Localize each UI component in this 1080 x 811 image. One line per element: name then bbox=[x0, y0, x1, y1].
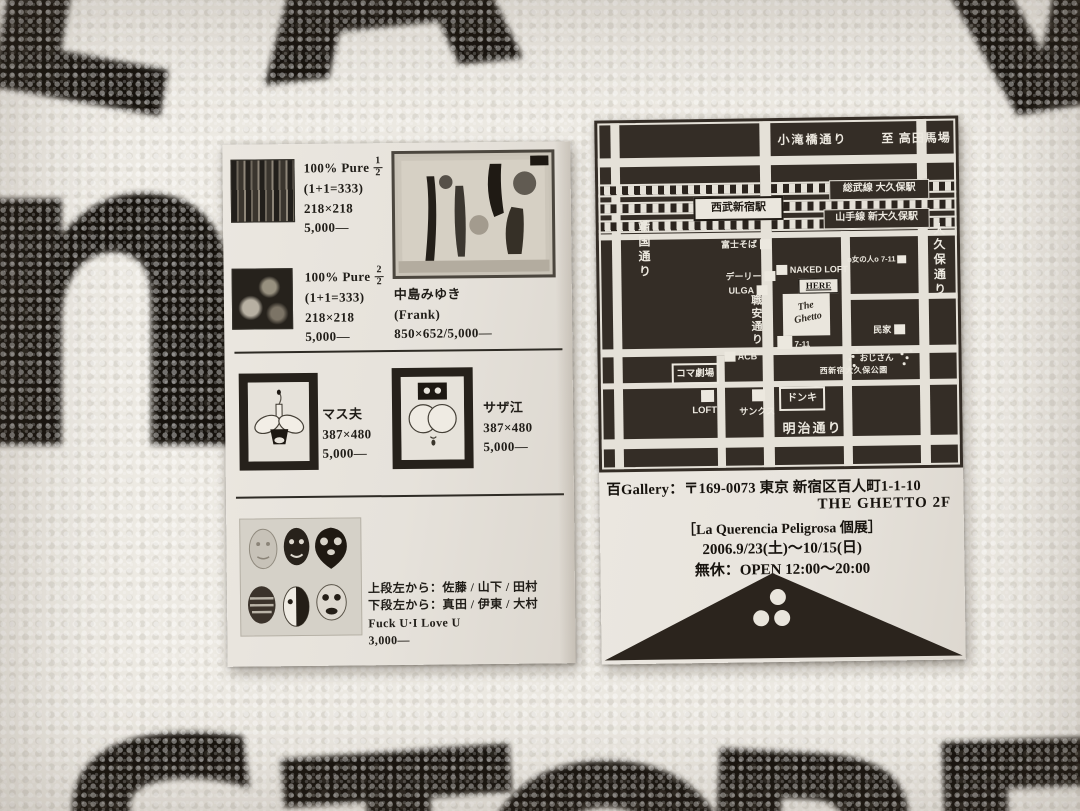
building-box-icon bbox=[756, 285, 767, 295]
masks-price: 3,000— bbox=[368, 631, 538, 650]
direction-takadanobaba-label: 至 高田馬場 bbox=[881, 129, 951, 147]
road-yasukuni bbox=[610, 123, 624, 469]
divider bbox=[234, 348, 562, 353]
building-box-icon bbox=[701, 390, 714, 402]
fraction: 22 bbox=[374, 265, 384, 287]
station-okubo: 総武線 大久保駅 bbox=[829, 179, 929, 200]
artwork-thumbnail-pure-1 bbox=[230, 159, 295, 223]
poi-fujisoba: 富士そば bbox=[721, 237, 771, 251]
artwork-name: サザ江 bbox=[483, 398, 532, 418]
poi-ojisan: おじさん bbox=[859, 351, 893, 363]
artwork-name: マス夫 bbox=[322, 404, 371, 424]
artwork-size: 387×480 bbox=[322, 424, 371, 444]
masks-photo bbox=[239, 517, 362, 636]
artwork-price: 5,000— bbox=[304, 217, 383, 237]
street-meiji-label: 明治通り bbox=[782, 417, 842, 437]
artwork-size: 387×480 bbox=[483, 417, 532, 437]
poi-seven-eleven: 7-11 bbox=[777, 336, 810, 349]
street-yasukuni-label: 靖国通り bbox=[636, 220, 654, 280]
building-box-icon bbox=[752, 389, 765, 401]
poi-koma-theater: コマ劇場 bbox=[672, 363, 719, 385]
artwork-price: 5,000— bbox=[322, 443, 371, 463]
artwork-size: 218×218 bbox=[304, 198, 383, 218]
building-box-icon bbox=[759, 239, 770, 249]
artwork-size: 218×218 bbox=[305, 307, 384, 327]
sparkle-dots bbox=[852, 355, 855, 358]
poi-minka: 民家 bbox=[873, 322, 905, 335]
framed-cartoon-sazae bbox=[392, 367, 474, 469]
poi-loft: LOFT bbox=[692, 405, 717, 416]
gallery-floor: THE GHETTO 2F bbox=[817, 495, 951, 514]
poi-naked-loft: NAKED LOFT bbox=[776, 264, 848, 275]
building-box-icon bbox=[777, 336, 792, 349]
artwork-title: 100% Pure22 bbox=[305, 265, 384, 288]
artwork-size-price: 850×652/5,000— bbox=[394, 323, 492, 344]
poi-donki: ドンキ bbox=[779, 386, 825, 411]
sparkle-dots bbox=[900, 352, 903, 355]
fraction: 12 bbox=[373, 156, 383, 178]
divider bbox=[236, 493, 564, 498]
masks-row2-names: 下段左から：真田 / 伊東 / 大村 bbox=[368, 596, 538, 615]
venue-handwritten-name: The Ghetto bbox=[784, 297, 830, 327]
featured-artwork-image bbox=[391, 149, 555, 279]
venue-building: The Ghetto bbox=[783, 293, 831, 336]
street-okubo-label: 大久保通り bbox=[931, 223, 949, 298]
bowling-ball-triangle-graphic bbox=[601, 567, 966, 662]
poi-sunkus: サンクス bbox=[739, 404, 775, 417]
artwork-thumbnail-pure-2 bbox=[232, 268, 294, 330]
road-kotakibashi bbox=[598, 154, 956, 168]
artist-name: 中島みゆき bbox=[394, 284, 492, 305]
artwork-edition: (1+1=333) bbox=[305, 287, 384, 307]
artwork-title: 100% Pure12 bbox=[303, 156, 382, 179]
artwork-price: 5,000— bbox=[305, 326, 384, 346]
street-kotakibashi-label: 小滝橋通り bbox=[777, 130, 847, 148]
street-shokuan-label: 職安通り bbox=[748, 294, 765, 346]
building-box-icon bbox=[764, 271, 775, 281]
building-box-icon bbox=[898, 255, 907, 263]
station-shin-okubo: 山手線 新大久保駅 bbox=[823, 208, 929, 229]
masks-caption: 上段左から：佐藤 / 山下 / 田村 下段左から：真田 / 伊東 / 大村 Fu… bbox=[368, 579, 539, 650]
masks-row1-names: 上段左から：佐藤 / 山下 / 田村 bbox=[368, 579, 538, 598]
artwork-caption-sazae: サザ江 387×480 5,000— bbox=[483, 398, 533, 457]
poi-daily: デーリー bbox=[725, 269, 775, 283]
poi-okubo-park: 西新宿大久保公園 bbox=[820, 364, 888, 376]
poi-woman-and-711: o女の人o 7-11 bbox=[847, 253, 907, 265]
station-seibu-shinjuku: 西武新宿駅 bbox=[693, 196, 783, 221]
artwork-caption-pure-2: 100% Pure22 (1+1=333) 218×218 5,000— bbox=[305, 265, 385, 346]
masks-title: Fuck U·I Love U bbox=[368, 613, 538, 632]
framed-cartoon-masuo bbox=[239, 373, 319, 471]
road-meiji bbox=[602, 434, 960, 449]
access-map: 西武新宿駅 総武線 大久保駅 山手線 新大久保駅 小滝橋通り 至 高田馬場 靖国… bbox=[594, 115, 963, 472]
featured-artwork-caption: 中島みゆき (Frank) 850×652/5,000— bbox=[394, 284, 492, 344]
left-flyer-price-list: 100% Pure12 (1+1=333) 218×218 5,000— 100… bbox=[222, 141, 575, 667]
poi-acb: ACB bbox=[724, 351, 757, 361]
artwork-caption-masuo: マス夫 387×480 5,000— bbox=[322, 404, 372, 463]
rug-letter: E bbox=[909, 696, 1080, 811]
artwork-caption-pure-1: 100% Pure12 (1+1=333) 218×218 5,000— bbox=[303, 156, 383, 237]
right-flyer-map-info: 西武新宿駅 総武線 大久保駅 山手線 新大久保駅 小滝橋通り 至 高田馬場 靖国… bbox=[594, 115, 966, 664]
railway-track bbox=[598, 182, 760, 197]
rug-letter: A bbox=[233, 0, 530, 138]
artwork-edition: (1+1=333) bbox=[304, 178, 383, 198]
photo-of-flyers-on-rug: L A V n S T O R E 100% Pure12 (1+1=333) … bbox=[0, 0, 1080, 811]
here-marker: HERE bbox=[798, 278, 838, 294]
building-box-icon bbox=[894, 324, 905, 334]
building-box-icon bbox=[724, 352, 735, 362]
artwork-price: 5,000— bbox=[483, 437, 532, 457]
poi-ulga: ULGA bbox=[729, 285, 768, 296]
artwork-title: (Frank) bbox=[394, 304, 492, 325]
building-box-icon bbox=[776, 265, 787, 275]
